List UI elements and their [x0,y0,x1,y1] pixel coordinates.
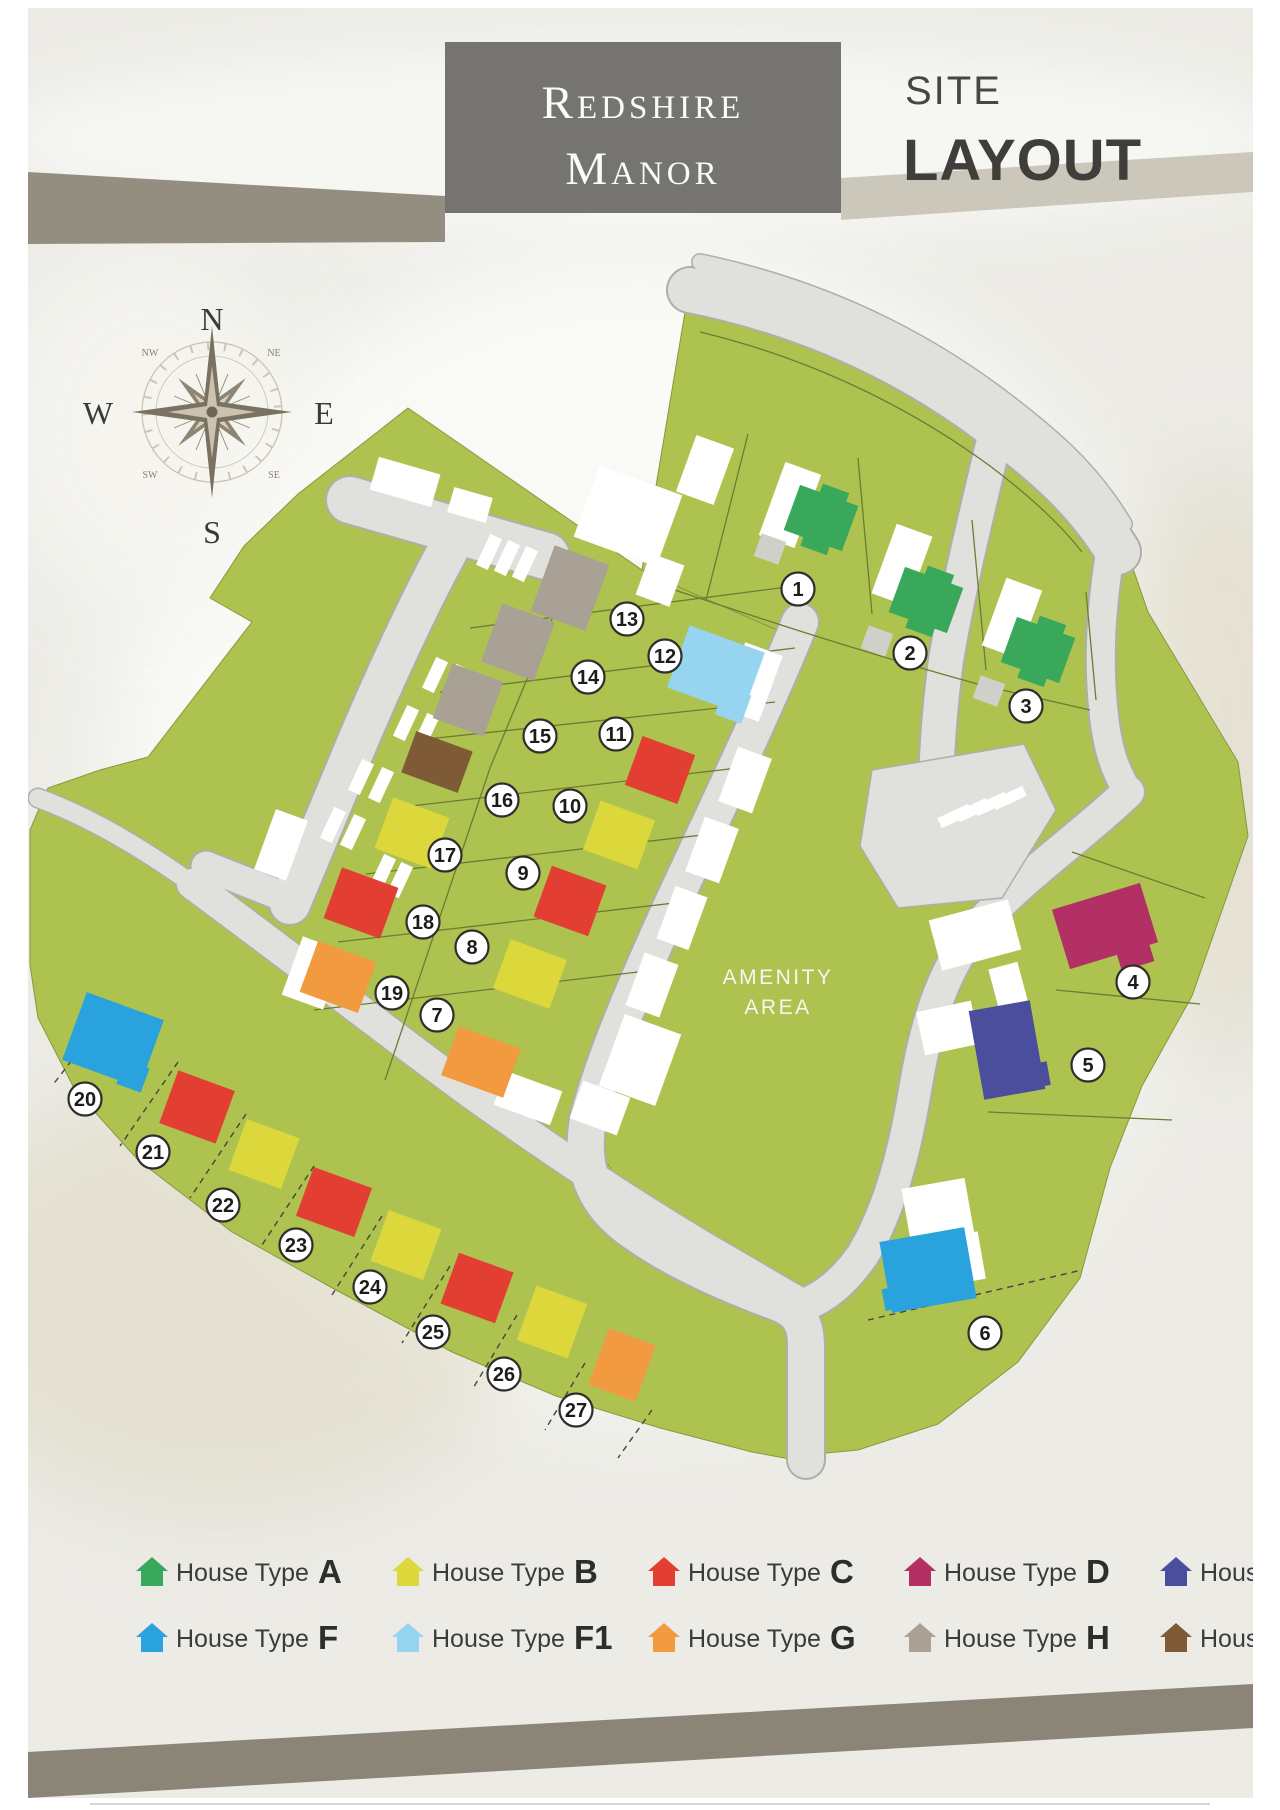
svg-text:17: 17 [434,845,456,867]
svg-text:7: 7 [431,1005,442,1027]
svg-text:18: 18 [412,912,434,934]
plot-badge-23: 23 [280,1229,313,1262]
legend-letter: F [318,1619,338,1656]
svg-text:6: 6 [979,1323,990,1345]
plot-badge-6: 6 [969,1317,1002,1350]
plot-badge-3: 3 [1010,690,1043,723]
svg-text:23: 23 [285,1235,307,1257]
svg-text:16: 16 [491,790,513,812]
amenity-area-label-line2: AREA [744,996,811,1019]
site-layout-page: Redshire Manor SITE LAYOUT NW NE SW SE [0,0,1280,1810]
plot-badge-27: 27 [560,1394,593,1427]
plot-badge-11: 11 [600,718,633,751]
plot-badge-26: 26 [488,1358,521,1391]
plot-badge-9: 9 [507,857,540,890]
legend-letter: G [830,1619,856,1656]
plot-badge-13: 13 [611,603,644,636]
compass-label-south: S [203,514,221,550]
plot-badge-12: 12 [649,640,682,673]
svg-text:24: 24 [359,1277,382,1299]
svg-text:3: 3 [1020,696,1031,718]
plot-badge-21: 21 [137,1136,170,1169]
legend-label: House Type [176,1625,309,1653]
plot-badge-17: 17 [429,839,462,872]
svg-text:8: 8 [466,937,477,959]
plot-badge-5: 5 [1072,1049,1105,1082]
legend-letter: B [574,1553,598,1590]
svg-text:5: 5 [1082,1055,1093,1077]
subtitle-site: SITE [905,69,1002,113]
compass-label-se: SE [268,470,280,481]
site-title-line2: Manor [565,143,720,195]
plot-badge-7: 7 [421,999,454,1032]
svg-text:26: 26 [493,1364,515,1386]
svg-text:12: 12 [654,646,676,668]
plot-badge-16: 16 [486,784,519,817]
svg-text:19: 19 [381,983,403,1005]
plot-badge-15: 15 [524,720,557,753]
legend-letter: H [1086,1619,1110,1656]
legend-letter: D [1086,1553,1110,1590]
subtitle-layout: LAYOUT [903,128,1142,193]
site-title-line1: Redshire [542,77,745,129]
plot-badge-10: 10 [554,790,587,823]
page-margin-top [0,0,1280,8]
plot-badge-8: 8 [456,931,489,964]
plot-badge-2: 2 [894,637,927,670]
plot-badge-18: 18 [407,906,440,939]
svg-text:25: 25 [422,1322,444,1344]
svg-text:20: 20 [74,1089,96,1111]
plot-badge-25: 25 [417,1316,450,1349]
legend-letter: F1 [574,1619,613,1656]
svg-text:21: 21 [142,1142,164,1164]
svg-text:1: 1 [792,579,803,601]
plot-badge-24: 24 [354,1271,387,1304]
compass-label-nw: NW [142,348,159,359]
plot-badge-14: 14 [572,661,605,694]
plot-badge-4: 4 [1117,966,1150,999]
legend-label: House Type [688,1559,821,1587]
legend-label: House Type [944,1559,1077,1587]
plot-badge-20: 20 [69,1083,102,1116]
legend-label: House Type [432,1559,565,1587]
compass-label-north: N [200,301,223,337]
legend-label: House Type [688,1625,821,1653]
svg-text:22: 22 [212,1195,234,1217]
legend-letter: C [830,1553,854,1590]
svg-text:11: 11 [605,724,626,746]
compass-label-ne: NE [267,348,280,359]
compass-label-east: E [314,395,334,431]
svg-text:13: 13 [616,609,638,631]
amenity-area-label-line1: AMENITY [723,966,834,989]
compass-label-west: W [83,395,114,431]
page-margin-left [0,0,28,1810]
svg-text:15: 15 [529,726,551,748]
plot-badge-22: 22 [207,1189,240,1222]
legend-label: House Type [944,1625,1077,1653]
svg-text:10: 10 [559,796,581,818]
svg-text:14: 14 [577,667,600,689]
svg-text:4: 4 [1127,972,1139,994]
legend-label: House Type [432,1625,565,1653]
svg-text:2: 2 [904,643,915,665]
compass-label-sw: SW [143,470,159,481]
page-margin-right [1253,0,1280,1810]
plot-badge-1: 1 [782,573,815,606]
svg-text:27: 27 [565,1400,587,1422]
compass-hub [207,407,218,418]
legend-letter: A [318,1553,342,1590]
plot-badge-19: 19 [376,977,409,1010]
svg-text:9: 9 [517,863,528,885]
legend-label: House Type [176,1559,309,1587]
site-plan: Redshire Manor SITE LAYOUT NW NE SW SE [0,0,1280,1810]
